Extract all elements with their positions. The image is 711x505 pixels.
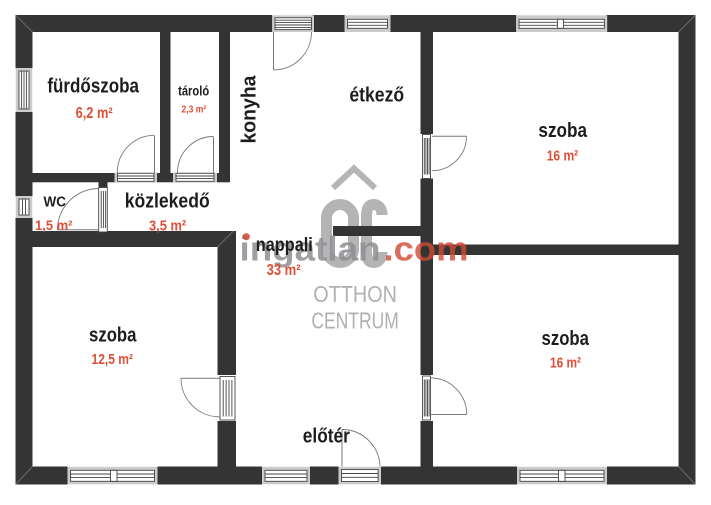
- svg-text:16 m²: 16 m²: [547, 148, 579, 165]
- svg-text:OTTHON: OTTHON: [313, 281, 397, 307]
- svg-text:CENTRUM: CENTRUM: [311, 308, 398, 334]
- svg-text:közlekedő: közlekedő: [125, 191, 210, 213]
- svg-text:33 m²: 33 m²: [267, 262, 301, 279]
- svg-text:fürdőszoba: fürdőszoba: [47, 75, 139, 97]
- svg-text:.com: .com: [384, 231, 469, 269]
- svg-text:12,5 m²: 12,5 m²: [92, 352, 134, 368]
- svg-text:szoba: szoba: [89, 325, 137, 347]
- svg-text:nappali: nappali: [256, 234, 313, 256]
- svg-text:előtér: előtér: [303, 425, 350, 447]
- svg-text:2,3 m²: 2,3 m²: [182, 103, 207, 115]
- svg-text:3,5 m²: 3,5 m²: [149, 218, 186, 235]
- svg-text:szoba: szoba: [542, 328, 590, 350]
- svg-text:1,5 m²: 1,5 m²: [35, 218, 73, 233]
- svg-text:WC: WC: [44, 195, 67, 211]
- svg-text:szoba: szoba: [538, 120, 587, 142]
- svg-text:16 m²: 16 m²: [550, 355, 581, 372]
- svg-text:6,2 m²: 6,2 m²: [76, 105, 113, 122]
- svg-text:tároló: tároló: [178, 82, 209, 98]
- svg-text:étkező: étkező: [349, 85, 404, 107]
- svg-text:konyha: konyha: [239, 75, 261, 144]
